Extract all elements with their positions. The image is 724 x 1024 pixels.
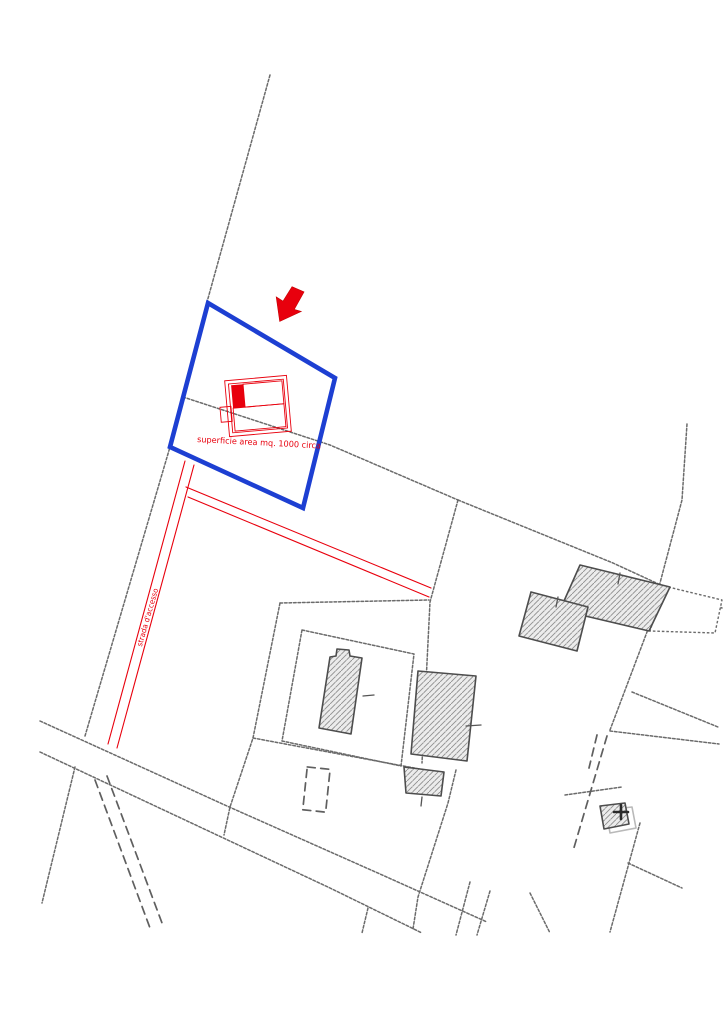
access-road-branch-lower xyxy=(188,497,429,597)
subject-building xyxy=(218,375,292,437)
neighbor-buildings xyxy=(319,565,722,833)
dashed-track-west-2 xyxy=(107,776,162,923)
se-fragment-horizontal xyxy=(565,787,622,795)
cadastral-map: strada d'accesso superficie area mq. 100… xyxy=(0,0,724,1024)
access-road: strada d'accesso xyxy=(108,461,431,748)
map-canvas: strada d'accesso superficie area mq. 100… xyxy=(0,0,724,1024)
building-se-small xyxy=(600,803,629,829)
subject-building-vertical-hatch xyxy=(243,381,284,407)
center-parcel-west-edge xyxy=(224,603,280,835)
road-cross-tick-3 xyxy=(477,891,490,935)
dashed-small-structure xyxy=(303,767,330,812)
center-parcel-north-edge xyxy=(280,600,429,603)
road-cross-tick-2 xyxy=(456,882,470,935)
se-fragment-vertical xyxy=(610,823,640,932)
road-lower-edge xyxy=(40,752,422,933)
tick-center-small xyxy=(421,797,422,806)
dashed-track-east-2 xyxy=(589,735,597,768)
access-road-east-edge xyxy=(117,465,194,748)
access-road-label: strada d'accesso xyxy=(135,587,160,648)
west-boundary-below-road xyxy=(42,767,75,903)
tick-center-tall xyxy=(363,695,374,696)
building-center-tall xyxy=(319,649,362,734)
highlighted-parcel-outline xyxy=(170,303,335,508)
dashed-track-west-1 xyxy=(95,780,150,928)
east-branch-upper xyxy=(632,692,718,727)
location-arrow-icon xyxy=(266,281,311,329)
building-center-small xyxy=(404,767,444,796)
east-branch-lower xyxy=(610,731,719,744)
se-fragment-lower xyxy=(530,893,550,933)
subject-building-diagonal-hatch xyxy=(233,404,286,431)
access-road-branch-upper xyxy=(186,487,431,588)
se-fragment-branch xyxy=(628,863,682,888)
building-center-right xyxy=(411,671,476,761)
road-cross-tick-1 xyxy=(362,908,368,933)
